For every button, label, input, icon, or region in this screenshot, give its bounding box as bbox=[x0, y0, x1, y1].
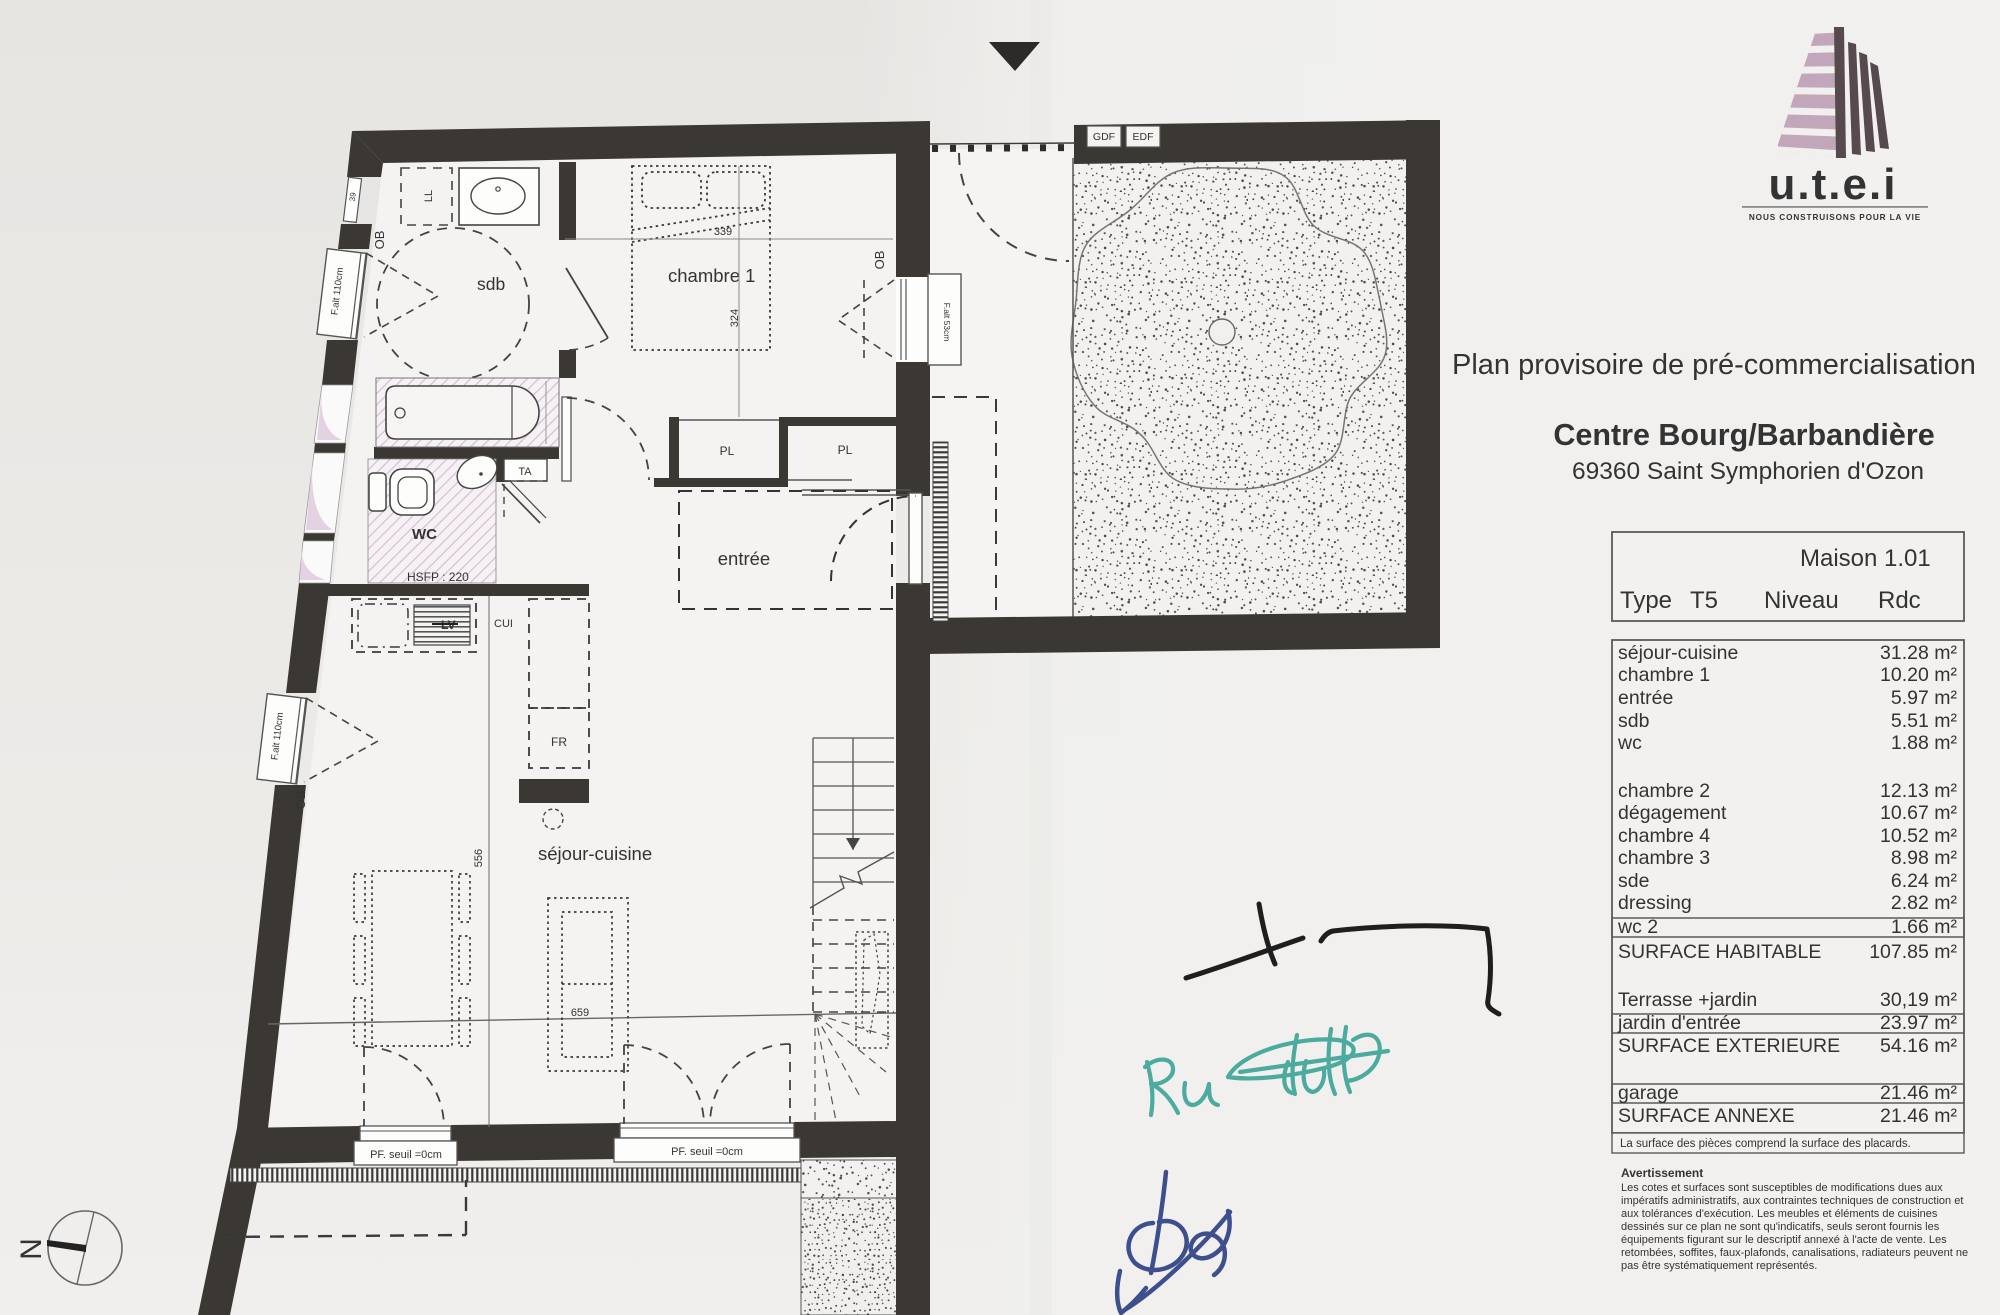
svg-text:OB: OB bbox=[372, 231, 387, 250]
svg-text:jardin d'entrée: jardin d'entrée bbox=[1617, 1012, 1741, 1034]
svg-text:séjour-cuisine: séjour-cuisine bbox=[538, 843, 652, 864]
svg-text:10.20 m²: 10.20 m² bbox=[1880, 664, 1957, 686]
svg-text:Plan provisoire de pré-commerc: Plan provisoire de pré-commercialisation bbox=[1452, 349, 1976, 381]
svg-text:wc: wc bbox=[1617, 732, 1642, 754]
svg-text:OB: OB bbox=[872, 251, 887, 270]
svg-text:1.66 m²: 1.66 m² bbox=[1891, 916, 1958, 938]
svg-text:556: 556 bbox=[473, 849, 485, 867]
svg-text:chambre 2: chambre 2 bbox=[1618, 780, 1710, 802]
svg-text:12.13 m²: 12.13 m² bbox=[1880, 780, 1957, 802]
svg-text:F.alt 53cm: F.alt 53cm bbox=[942, 303, 952, 342]
svg-text:339: 339 bbox=[714, 226, 732, 238]
svg-text:21.46 m²: 21.46 m² bbox=[1880, 1082, 1957, 1104]
svg-text:OB: OB bbox=[293, 791, 308, 810]
svg-text:sdb: sdb bbox=[1618, 710, 1650, 732]
svg-text:Type: Type bbox=[1620, 587, 1672, 614]
svg-text:23.97 m²: 23.97 m² bbox=[1880, 1012, 1957, 1034]
svg-text:LL: LL bbox=[423, 190, 435, 202]
svg-text:Maison 1.01: Maison 1.01 bbox=[1800, 545, 1931, 572]
svg-text:Niveau: Niveau bbox=[1764, 587, 1839, 614]
svg-text:TA: TA bbox=[518, 466, 532, 478]
svg-text:dégagement: dégagement bbox=[1618, 802, 1727, 824]
svg-text:chambre 1: chambre 1 bbox=[668, 265, 755, 286]
svg-text:pas être systématiquement repr: pas être systématiquement représentés. bbox=[1621, 1260, 1817, 1272]
svg-text:entrée: entrée bbox=[718, 548, 770, 569]
svg-text:entrée: entrée bbox=[1618, 687, 1673, 709]
svg-text:NOUS CONSTRUISONS POUR LA VIE: NOUS CONSTRUISONS POUR LA VIE bbox=[1749, 213, 1921, 222]
svg-text:31.28 m²: 31.28 m² bbox=[1880, 642, 1957, 664]
svg-text:CUI: CUI bbox=[494, 618, 513, 630]
svg-text:PF. seuil =0cm: PF. seuil =0cm bbox=[370, 1149, 442, 1161]
svg-text:N: N bbox=[15, 1238, 48, 1260]
svg-text:séjour-cuisine: séjour-cuisine bbox=[1618, 642, 1738, 664]
svg-text:39: 39 bbox=[348, 191, 358, 201]
svg-text:PL: PL bbox=[720, 444, 735, 458]
svg-text:impératifs administratifs, aux: impératifs administratifs, aux contraint… bbox=[1621, 1195, 1963, 1207]
svg-text:T5: T5 bbox=[1690, 587, 1718, 614]
svg-text:u.t.e.i: u.t.e.i bbox=[1769, 160, 1898, 209]
svg-text:EDF: EDF bbox=[1133, 131, 1154, 143]
svg-text:chambre 4: chambre 4 bbox=[1618, 825, 1710, 847]
svg-text:SURFACE ANNEXE: SURFACE ANNEXE bbox=[1618, 1105, 1795, 1127]
svg-text:1.88 m²: 1.88 m² bbox=[1891, 732, 1958, 754]
svg-text:107.85 m²: 107.85 m² bbox=[1869, 941, 1957, 963]
svg-text:PF. seuil =0cm: PF. seuil =0cm bbox=[671, 1146, 743, 1158]
svg-text:garage: garage bbox=[1618, 1082, 1679, 1104]
svg-text:6.24 m²: 6.24 m² bbox=[1891, 870, 1958, 892]
svg-text:2.82 m²: 2.82 m² bbox=[1891, 892, 1958, 914]
svg-text:dressing: dressing bbox=[1618, 892, 1692, 914]
svg-text:69360 Saint Symphorien d'Ozon: 69360 Saint Symphorien d'Ozon bbox=[1572, 458, 1924, 485]
svg-text:équipements figurant sur le de: équipements figurant sur le descriptif a… bbox=[1621, 1234, 1947, 1246]
svg-text:Centre Bourg/Barbandière: Centre Bourg/Barbandière bbox=[1553, 418, 1934, 452]
svg-text:dessinés sur ce plan ne sont q: dessinés sur ce plan ne sont qu'indicati… bbox=[1621, 1221, 1940, 1233]
svg-text:54.16 m²: 54.16 m² bbox=[1880, 1035, 1957, 1057]
svg-text:HSFP : 220: HSFP : 220 bbox=[407, 570, 469, 584]
svg-text:GDF: GDF bbox=[1093, 131, 1115, 143]
svg-text:retombées, soffites, faux-plaf: retombées, soffites, faux-plafonds, cana… bbox=[1621, 1247, 1968, 1259]
svg-text:WC: WC bbox=[412, 526, 437, 543]
svg-text:SURFACE HABITABLE: SURFACE HABITABLE bbox=[1618, 941, 1821, 963]
svg-text:5.51 m²: 5.51 m² bbox=[1891, 710, 1958, 732]
svg-text:Avertissement: Avertissement bbox=[1621, 1166, 1703, 1180]
svg-text:chambre 1: chambre 1 bbox=[1618, 664, 1710, 686]
svg-text:aux tolérances d'exécution. Le: aux tolérances d'exécution. Les meubles … bbox=[1621, 1208, 1938, 1220]
svg-text:659: 659 bbox=[571, 1007, 589, 1019]
svg-text:10.52 m²: 10.52 m² bbox=[1880, 825, 1957, 847]
svg-text:SURFACE EXTERIEURE: SURFACE EXTERIEURE bbox=[1618, 1035, 1840, 1057]
svg-text:PL: PL bbox=[838, 443, 853, 457]
svg-text:FR: FR bbox=[551, 735, 567, 749]
svg-text:sdb: sdb bbox=[477, 274, 505, 294]
svg-text:8.98 m²: 8.98 m² bbox=[1891, 847, 1958, 869]
svg-text:21.46 m²: 21.46 m² bbox=[1880, 1105, 1957, 1127]
svg-text:wc 2: wc 2 bbox=[1617, 916, 1658, 938]
svg-text:Les cotes et surfaces sont sus: Les cotes et surfaces sont susceptibles … bbox=[1621, 1182, 1943, 1194]
svg-text:sde: sde bbox=[1618, 870, 1649, 892]
svg-text:30,19 m²: 30,19 m² bbox=[1880, 989, 1957, 1011]
svg-text:5.97 m²: 5.97 m² bbox=[1891, 687, 1958, 709]
svg-text:10.67 m²: 10.67 m² bbox=[1880, 802, 1957, 824]
svg-text:chambre 3: chambre 3 bbox=[1618, 847, 1710, 869]
svg-text:La surface des pièces comprend: La surface des pièces comprend la surfac… bbox=[1620, 1138, 1911, 1150]
svg-text:Rdc: Rdc bbox=[1878, 587, 1921, 614]
svg-text:Terrasse +jardin: Terrasse +jardin bbox=[1618, 989, 1757, 1011]
